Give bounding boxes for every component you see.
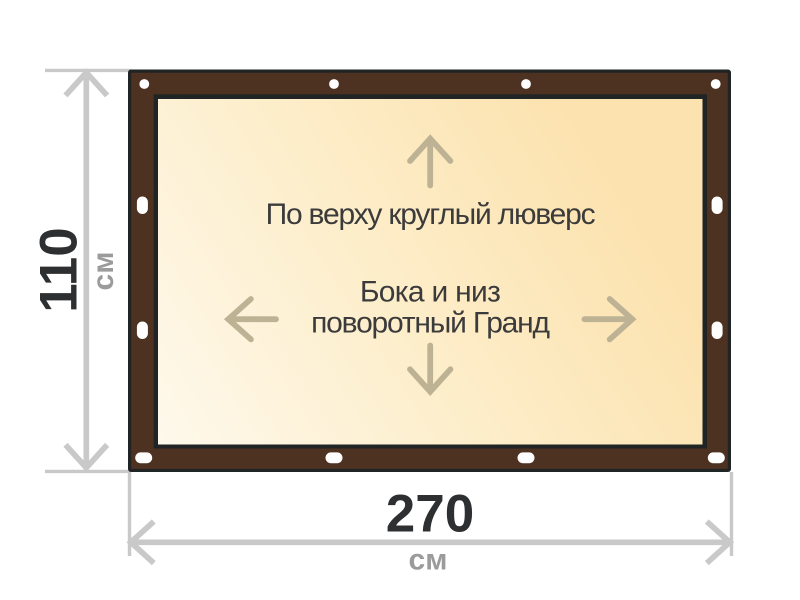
svg-text:270: 270	[386, 485, 474, 544]
svg-text:см: см	[87, 252, 120, 291]
svg-text:По верху круглый люверс: По верху круглый люверс	[266, 198, 596, 231]
svg-text:см: см	[409, 543, 448, 576]
svg-text:110: 110	[29, 227, 88, 313]
svg-text:поворотный Гранд: поворотный Гранд	[311, 306, 549, 339]
svg-text:Бока и низ: Бока и низ	[360, 275, 500, 308]
